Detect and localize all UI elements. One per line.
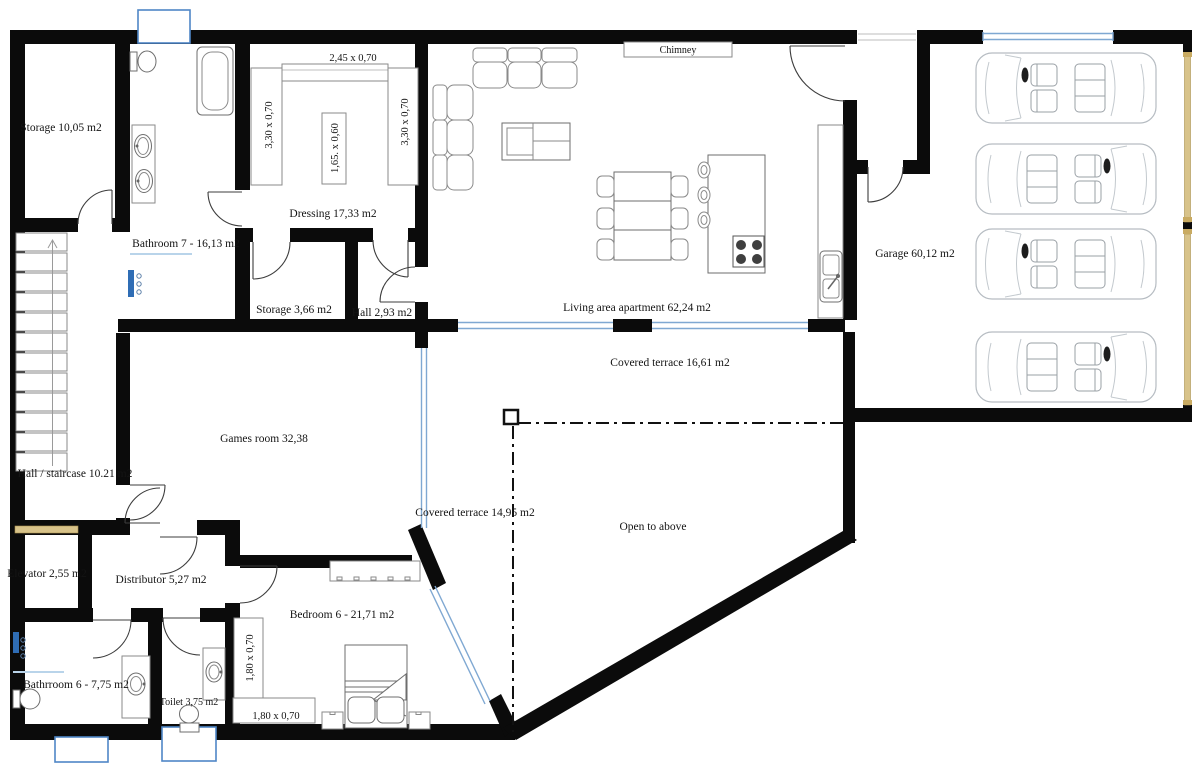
dim-label-dressing-left: 3,30 x 0,70 (264, 101, 275, 148)
bathroom6-fixtures (13, 632, 150, 718)
entry-threshold (858, 34, 916, 40)
door-storage-upper (78, 190, 112, 224)
room-label-living: Living area apartment 62,24 m2 (563, 302, 711, 314)
dim-label-dressing-top: 2,45 x 0,70 (329, 53, 376, 64)
door-distributor-toilet (163, 618, 200, 655)
shower-bathroom7 (128, 254, 192, 297)
room-label-elevator: Elevator 2,55 m2 (7, 568, 87, 580)
garage-cars (976, 53, 1156, 402)
kitchen-island (698, 155, 765, 273)
bed (345, 645, 407, 728)
toilet-bathroom7 (130, 51, 156, 72)
door-dressing-storage-small (253, 242, 290, 279)
toilet-room-fixtures (180, 648, 226, 732)
room-label-terrace-upper: Covered terrace 16,61 m2 (610, 357, 730, 369)
door-vestibule-garage (868, 167, 903, 202)
room-label-bedroom6: Bedroom 6 - 21,71 m2 (290, 609, 395, 621)
lightwell-top (138, 10, 190, 43)
car-icon (976, 332, 1156, 402)
lightwell-bottom-left (55, 737, 108, 762)
dining-table (597, 172, 688, 260)
room-label-terrace-lower: Covered terrace 14,95 m2 (415, 507, 535, 519)
door-games-distributor (160, 537, 197, 574)
terrace-glass-wall (422, 348, 491, 704)
car-icon (976, 53, 1156, 123)
door-dressing-hall (373, 240, 408, 277)
room-label-toilet: Toilet 3,75 m2 (160, 697, 218, 708)
dim-label-bedroom-closet-bottom: 1,80 x 0,70 (252, 711, 299, 722)
doors (78, 46, 903, 658)
room-label-garage: Garage 60,12 m2 (875, 248, 955, 260)
bathtub (197, 47, 233, 115)
garage-window (983, 32, 1113, 41)
dim-label-dressing-island: 1,65. x 0,60 (330, 123, 341, 173)
room-label-storage-upper: Storage 10,05 m2 (20, 122, 102, 134)
car-icon (976, 144, 1156, 214)
room-label-bathroom6: Bathrroom 6 - 7,75 m2 (23, 679, 129, 691)
room-label-bathroom7: Bathroom 7 - 16,13 m2 (132, 238, 240, 250)
floor-plan: Storage 10,05 m2 Bathroom 7 - 16,13 m2 2… (0, 0, 1200, 767)
door-bathroom7-dressing (208, 192, 242, 226)
dim-label-bedroom-closet-left: 1,80 x 0,70 (245, 634, 256, 681)
sofa (433, 48, 577, 190)
bedroom-furniture (233, 561, 430, 729)
room-label-open-above: Open to above (619, 521, 686, 533)
kitchen-counter (818, 125, 843, 318)
room-label-distributor: Distributor 5,27 m2 (115, 574, 206, 586)
dim-label-dressing-right: 3,30 x 0,70 (400, 98, 411, 145)
room-label-dressing: Dressing 17,33 m2 (289, 208, 376, 220)
door-distributor-bedroom (240, 566, 277, 603)
coffee-table (502, 123, 570, 160)
room-label-hall-staircase: Hall / staircase 10.21 m2 (18, 468, 133, 480)
room-label-games-room: Games room 32,38 (220, 433, 308, 445)
door-living-vestibule (790, 46, 845, 101)
vanity-bathroom7 (132, 125, 155, 203)
car-icon (976, 229, 1156, 299)
room-label-hall-small: Hall 2,93 m2 (352, 307, 413, 319)
room-label-chimney: Chimney (660, 45, 697, 56)
door-hall-living (380, 267, 415, 302)
column (504, 410, 518, 424)
elevator-door (15, 526, 78, 533)
door-distributor-bathroom6 (93, 620, 131, 658)
room-label-storage-small: Storage 3,66 m2 (256, 304, 332, 316)
